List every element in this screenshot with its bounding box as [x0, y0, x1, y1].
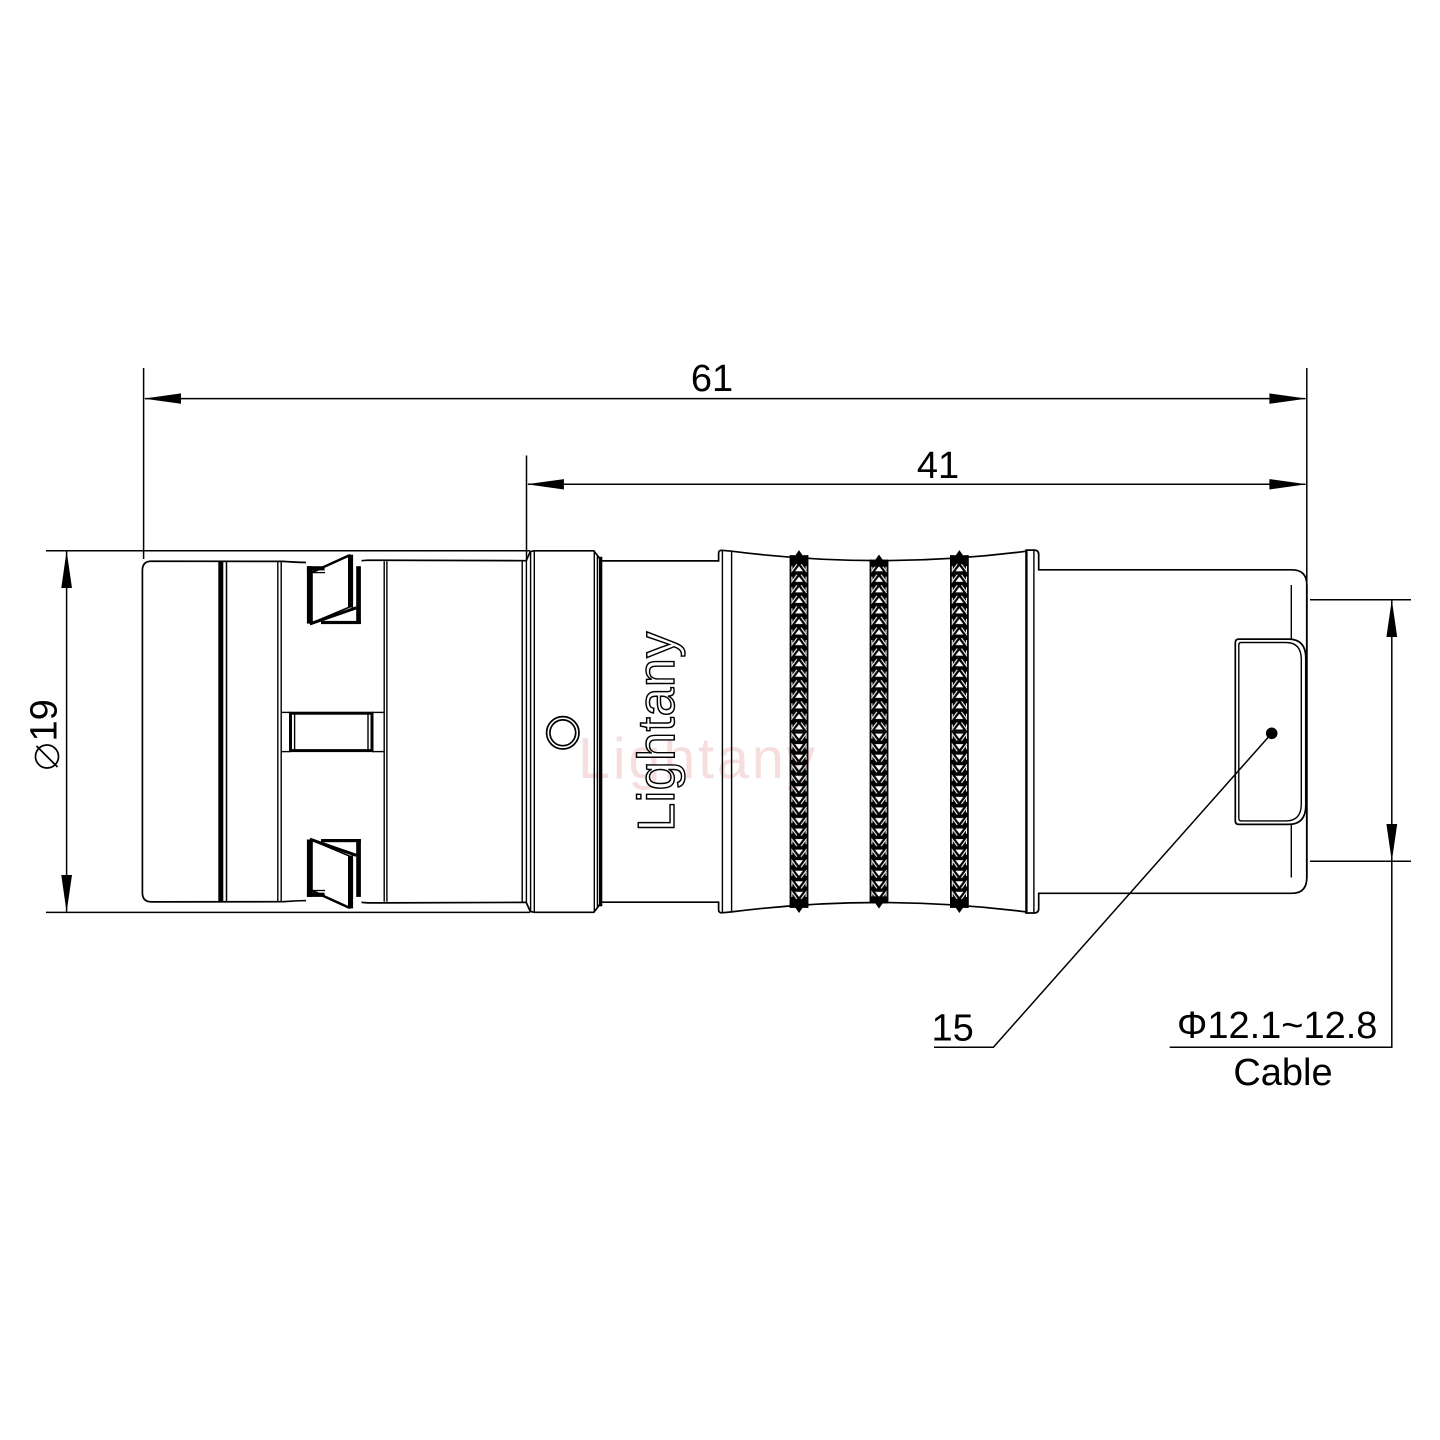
svg-text:Φ12.1~12.8: Φ12.1~12.8 — [1177, 1005, 1377, 1047]
svg-text:41: 41 — [917, 445, 959, 487]
svg-text:15: 15 — [931, 1008, 973, 1050]
svg-text:61: 61 — [691, 358, 733, 400]
svg-text:Cable: Cable — [1233, 1052, 1332, 1094]
svg-text:Lightany: Lightany — [578, 727, 818, 791]
svg-text:19: 19 — [24, 699, 66, 741]
svg-text:Lightany: Lightany — [628, 631, 686, 832]
